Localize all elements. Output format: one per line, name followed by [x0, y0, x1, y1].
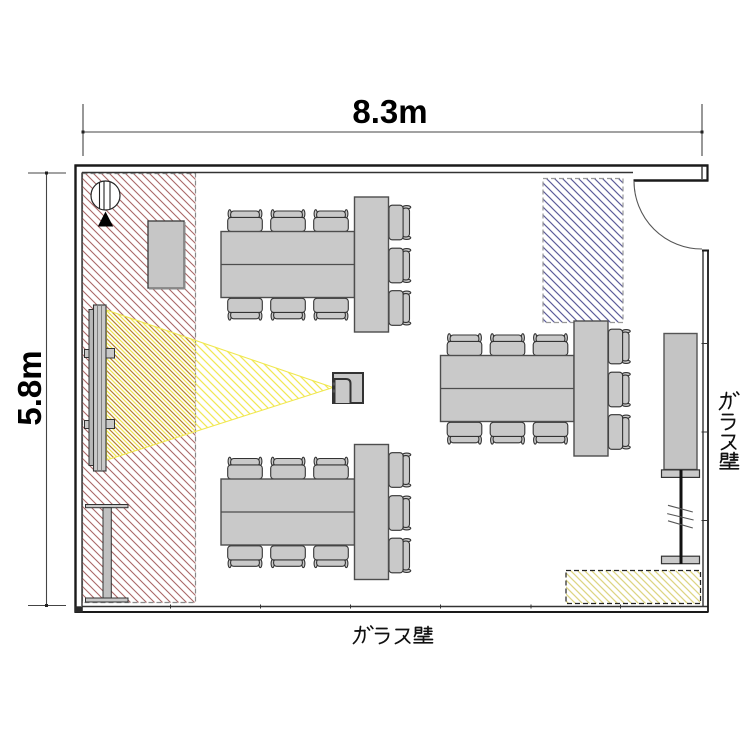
svg-text:5.8m: 5.8m: [11, 350, 48, 425]
svg-text:8.3m: 8.3m: [352, 93, 427, 130]
